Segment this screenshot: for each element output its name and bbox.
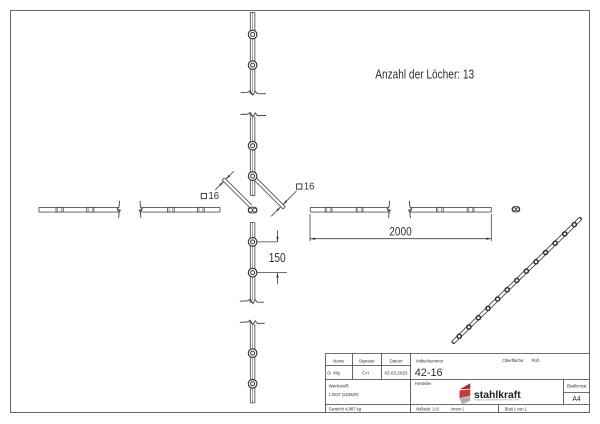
svg-text:Blattformat: Blattformat bbox=[567, 384, 587, 389]
svg-text:Roh: Roh bbox=[532, 358, 540, 363]
svg-text:CH: CH bbox=[362, 370, 369, 375]
svg-text:Oberfläche:: Oberfläche: bbox=[502, 358, 524, 363]
svg-text:Hersteller: Hersteller bbox=[415, 381, 432, 386]
svg-text:Fertigungs- und Handelsunterne: Fertigungs- und Handelsunternehmen GmbH bbox=[474, 397, 519, 401]
svg-text:Artikelnummer: Artikelnummer bbox=[416, 358, 444, 363]
svg-text:150: 150 bbox=[269, 251, 286, 265]
svg-text:Gewicht 4,887 kg: Gewicht 4,887 kg bbox=[329, 407, 362, 412]
svg-text:Ch. Höfig: Ch. Höfig bbox=[327, 370, 340, 375]
svg-text:Blatt 1 von 1: Blatt 1 von 1 bbox=[505, 407, 527, 412]
svg-text:A4: A4 bbox=[572, 396, 581, 403]
svg-text:1.0037 (S235JR): 1.0037 (S235JR) bbox=[329, 392, 359, 397]
svg-text:Datum: Datum bbox=[390, 359, 403, 364]
svg-text:Signatur: Signatur bbox=[359, 359, 375, 364]
svg-text:Werkstoff:: Werkstoff: bbox=[329, 383, 350, 388]
svg-text:Maßstab: 1:10: Maßstab: 1:10 bbox=[416, 407, 439, 412]
svg-text:16: 16 bbox=[209, 190, 220, 202]
svg-text:42-16: 42-16 bbox=[415, 367, 443, 379]
svg-text:03.03.2023: 03.03.2023 bbox=[385, 370, 408, 375]
svg-text:Version 1: Version 1 bbox=[451, 407, 465, 412]
svg-text:16: 16 bbox=[304, 180, 315, 192]
svg-text:2000: 2000 bbox=[389, 226, 411, 238]
svg-text:Name: Name bbox=[333, 359, 344, 364]
svg-text:Anzahl der Löcher: 13: Anzahl der Löcher: 13 bbox=[375, 66, 474, 81]
